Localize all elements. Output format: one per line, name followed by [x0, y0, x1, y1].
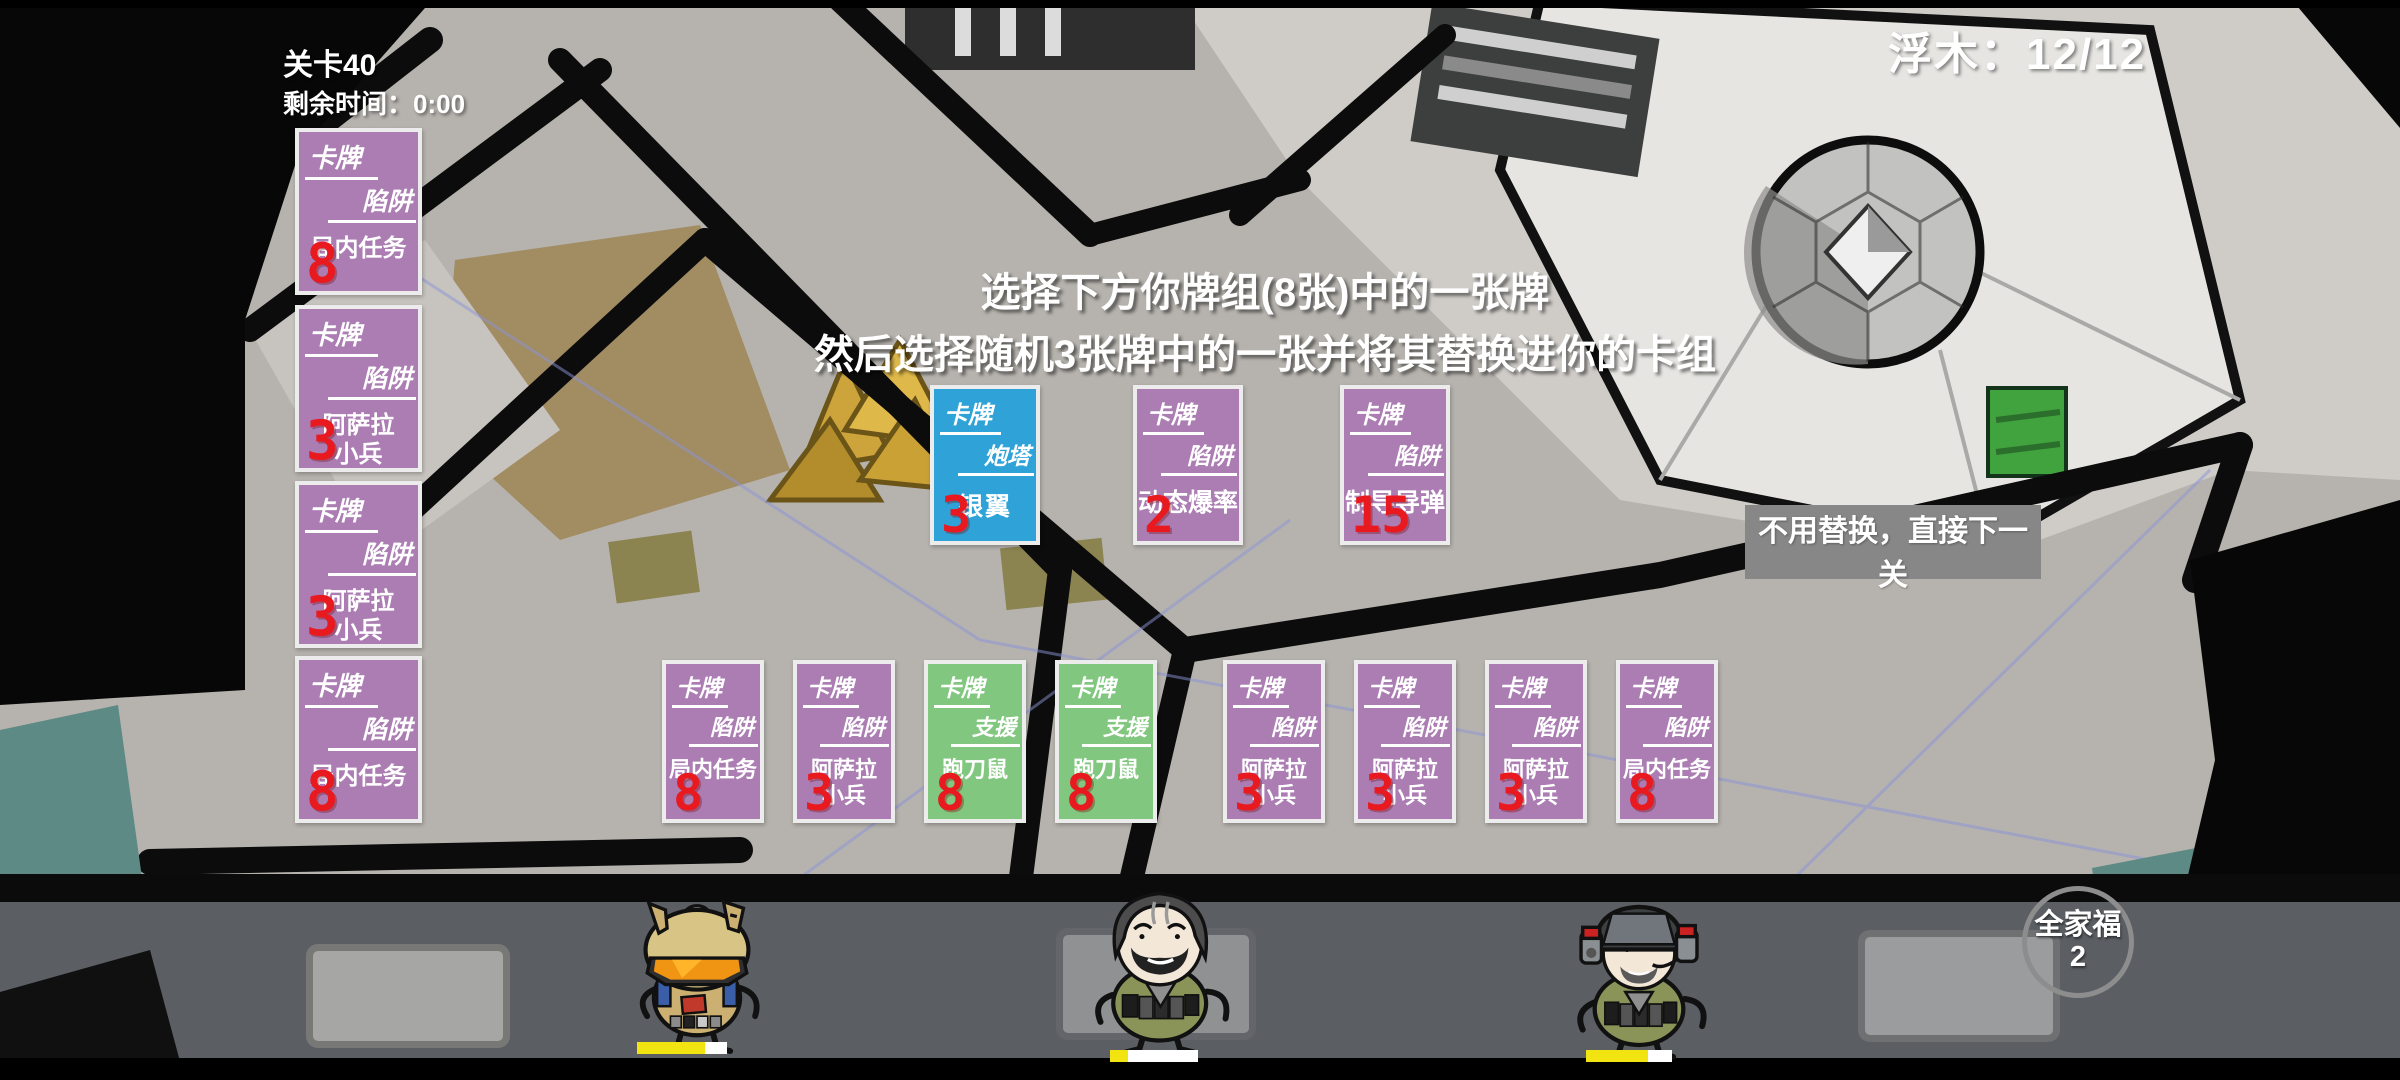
card-type: 陷阱 — [1250, 710, 1319, 747]
character-capped-soldier — [1556, 900, 1722, 1062]
character-helmet-trooper — [615, 890, 779, 1056]
card-type: 陷阱 — [1512, 710, 1581, 747]
card-count: 15 — [1351, 492, 1411, 540]
reserve-card-1[interactable]: 卡牌 陷阱 局内任务 8 — [295, 128, 422, 295]
card-count: 8 — [1066, 770, 1096, 818]
card-type: 陷阱 — [820, 710, 889, 747]
health-bar — [1110, 1050, 1198, 1062]
family-photo-count: 2 — [2070, 942, 2086, 974]
card-count: 8 — [306, 238, 339, 289]
card-category: 卡牌 — [305, 666, 378, 708]
card-category: 卡牌 — [940, 395, 1001, 435]
card-category: 卡牌 — [1495, 669, 1551, 708]
card-count: 3 — [1365, 770, 1395, 818]
reserve-card-3[interactable]: 卡牌 陷阱 阿萨拉小兵 3 — [295, 481, 422, 648]
deck-card-5[interactable]: 卡牌 陷阱 阿萨拉小兵 3 — [1223, 660, 1325, 823]
card-type: 陷阱 — [328, 710, 416, 751]
card-type: 支援 — [951, 710, 1020, 747]
health-bar — [1586, 1050, 1672, 1062]
level-label: 关卡40 — [283, 40, 376, 84]
card-count: 8 — [673, 770, 703, 818]
offer-card-3[interactable]: 卡牌 陷阱 制导导弹 15 — [1340, 385, 1450, 545]
card-category: 卡牌 — [672, 669, 728, 708]
driftwood-counter: 浮木：12/12 — [1888, 18, 2146, 82]
card-type: 陷阱 — [1381, 710, 1450, 747]
card-count: 3 — [804, 770, 834, 818]
instruction-text: 选择下方你牌组(8张)中的一张牌 然后选择随机3张牌中的一张并将其替换进你的卡组 — [760, 262, 1770, 386]
card-category: 卡牌 — [1233, 669, 1289, 708]
card-category: 卡牌 — [305, 491, 378, 533]
card-category: 卡牌 — [1626, 669, 1682, 708]
health-bar-fill — [1586, 1050, 1648, 1062]
card-type: 陷阱 — [328, 535, 416, 576]
card-type: 陷阱 — [328, 182, 416, 223]
card-type: 陷阱 — [328, 359, 416, 400]
family-photo-label: 全家福 — [2034, 910, 2121, 942]
card-count: 8 — [935, 770, 965, 818]
family-photo-badge[interactable]: 全家福 2 — [2022, 886, 2134, 998]
skip-replace-button[interactable]: 不用替换，直接下一关 — [1745, 505, 2041, 579]
offer-card-2[interactable]: 卡牌 陷阱 动态爆率 2 — [1133, 385, 1243, 545]
deck-card-1[interactable]: 卡牌 陷阱 局内任务 8 — [662, 660, 764, 823]
card-category: 卡牌 — [305, 315, 378, 357]
card-type: 陷阱 — [689, 710, 758, 747]
card-count: 3 — [306, 591, 339, 642]
deck-card-4[interactable]: 卡牌 支援 跑刀鼠 8 — [1055, 660, 1157, 823]
game-stage: 关卡40 剩余时间：0:00 浮木：12/12 选择下方你牌组(8张)中的一张牌… — [0, 0, 2400, 1080]
card-category: 卡牌 — [1350, 395, 1411, 435]
card-category: 卡牌 — [1364, 669, 1420, 708]
reserve-card-2[interactable]: 卡牌 陷阱 阿萨拉小兵 3 — [295, 305, 422, 472]
card-type: 陷阱 — [1643, 710, 1712, 747]
card-category: 卡牌 — [934, 669, 990, 708]
deck-card-6[interactable]: 卡牌 陷阱 阿萨拉小兵 3 — [1354, 660, 1456, 823]
character-bearded-veteran — [1082, 882, 1234, 1058]
card-count: 3 — [1234, 770, 1264, 818]
deck-card-8[interactable]: 卡牌 陷阱 局内任务 8 — [1616, 660, 1718, 823]
card-count: 8 — [306, 766, 339, 817]
card-type: 陷阱 — [1161, 437, 1237, 476]
card-category: 卡牌 — [1065, 669, 1121, 708]
card-category: 卡牌 — [803, 669, 859, 708]
health-bar — [637, 1042, 727, 1054]
offer-card-1[interactable]: 卡牌 炮塔 银翼 3 — [930, 385, 1040, 545]
card-type: 炮塔 — [958, 437, 1034, 476]
card-type: 支援 — [1082, 710, 1151, 747]
instruction-line-2: 然后选择随机3张牌中的一张并将其替换进你的卡组 — [760, 324, 1770, 386]
deck-card-7[interactable]: 卡牌 陷阱 阿萨拉小兵 3 — [1485, 660, 1587, 823]
card-count: 2 — [1144, 492, 1174, 540]
card-count: 8 — [1627, 770, 1657, 818]
card-count: 3 — [1496, 770, 1526, 818]
card-category: 卡牌 — [1143, 395, 1204, 435]
health-bar-fill — [1110, 1050, 1128, 1062]
card-category: 卡牌 — [305, 138, 378, 180]
deck-card-3[interactable]: 卡牌 支援 跑刀鼠 8 — [924, 660, 1026, 823]
card-type: 陷阱 — [1368, 437, 1444, 476]
spawn-pad-left — [306, 944, 510, 1048]
deck-card-2[interactable]: 卡牌 陷阱 阿萨拉小兵 3 — [793, 660, 895, 823]
instruction-line-1: 选择下方你牌组(8张)中的一张牌 — [760, 262, 1770, 324]
reserve-card-4[interactable]: 卡牌 陷阱 局内任务 8 — [295, 656, 422, 823]
remaining-time-label: 剩余时间：0:00 — [283, 84, 465, 121]
health-bar-fill — [637, 1042, 705, 1054]
card-count: 3 — [941, 492, 971, 540]
card-count: 3 — [306, 415, 339, 466]
